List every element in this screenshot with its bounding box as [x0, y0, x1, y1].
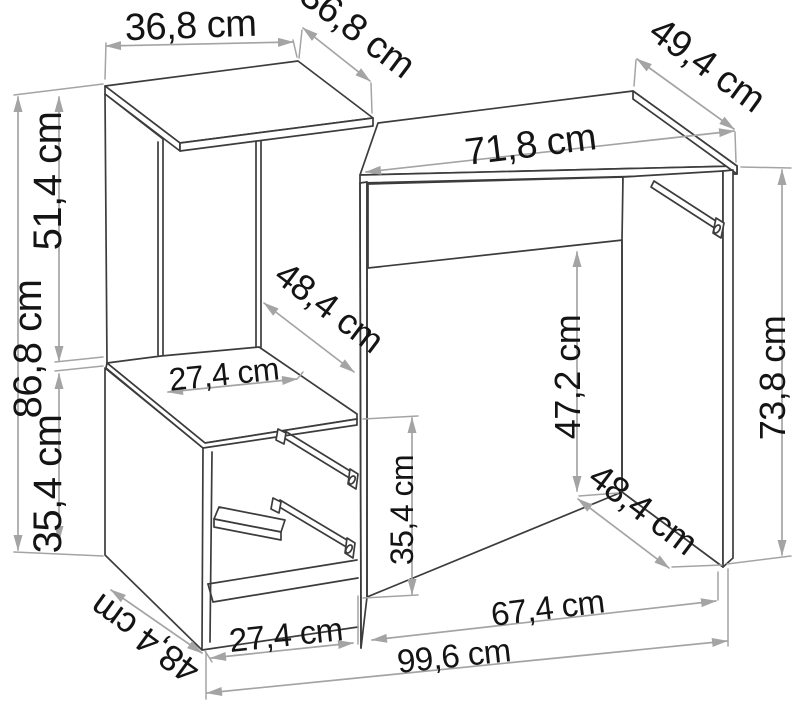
drawer-slide-rails: [271, 429, 358, 558]
dim-label-tower-upper-height: 51,4 cm: [26, 112, 70, 251]
drawer-front: [368, 177, 623, 268]
dim-label-shelf-top-width: 36,8 cm: [124, 3, 257, 50]
dim-label-compartment-depth: 48,4 cm: [267, 253, 391, 361]
dim-desk-section-width: 67,4 cm: [372, 582, 716, 640]
dim-shelf-top-width: 36,8 cm: [106, 3, 293, 50]
dim-cabinet-inner-height: 35,4 cm: [384, 418, 420, 594]
desk-diagram-canvas: 36,8 cm 36,8 cm 49,4 cm 71,8 cm 51,4 cm …: [0, 0, 800, 716]
dim-desk-height: 73,8 cm: [752, 170, 793, 555]
dim-label-total-width: 99,6 cm: [395, 631, 512, 680]
dim-label-desk-section-width: 67,4 cm: [489, 582, 607, 633]
dim-label-under-desk-clearance: 47,2 cm: [547, 315, 588, 440]
dim-label-desk-height: 73,8 cm: [752, 316, 793, 441]
furniture-outline: [105, 61, 737, 650]
dim-label-tower-lower-height: 35,4 cm: [26, 415, 70, 554]
tower-divider-panel: [256, 141, 261, 347]
dim-label-desk-top-depth: 49,4 cm: [641, 10, 772, 121]
desk-left-panel: [360, 182, 367, 648]
dim-compartment-depth: 48,4 cm: [264, 253, 392, 372]
dim-under-desk-clearance: 47,2 cm: [547, 252, 588, 491]
dim-label-tower-total-height: 86,8 cm: [6, 280, 50, 419]
dim-cabinet-bottom-width: 27,4 cm: [211, 610, 353, 659]
dimension-diagram: 36,8 cm 36,8 cm 49,4 cm 71,8 cm 51,4 cm …: [0, 0, 800, 716]
dim-label-cabinet-inner-height: 35,4 cm: [384, 455, 420, 565]
dim-label-cabinet-bottom-width: 27,4 cm: [227, 610, 344, 659]
